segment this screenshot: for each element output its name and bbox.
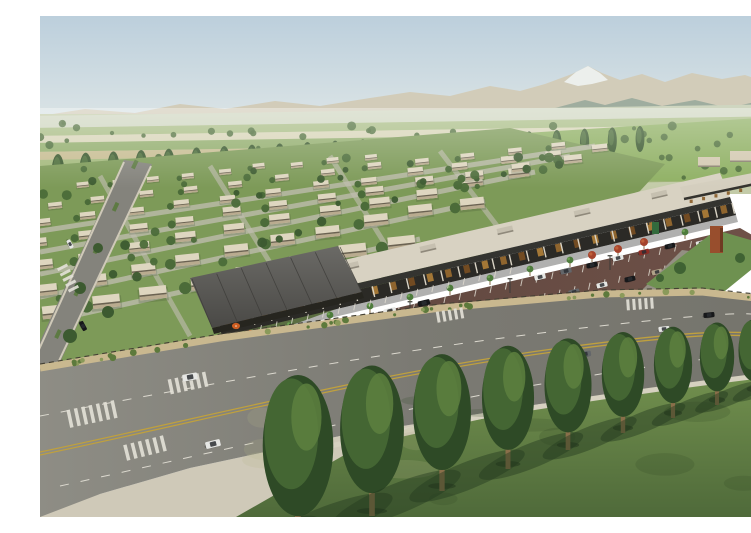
- buffer-shrub: [747, 296, 750, 299]
- red-highlight: [615, 246, 618, 249]
- buffer-shrub: [573, 296, 577, 300]
- residential-tree: [317, 217, 326, 226]
- red-accent-tree: [614, 245, 622, 256]
- palm-crown: [567, 257, 574, 264]
- entrance-tree: [656, 274, 664, 282]
- street-tree: [102, 306, 114, 318]
- house: [318, 204, 342, 218]
- house: [222, 243, 250, 259]
- residential-tree: [218, 257, 227, 266]
- residential-tree: [140, 240, 149, 249]
- entrance-tree: [674, 262, 686, 274]
- house: [314, 225, 342, 241]
- grass-patch: [635, 453, 694, 475]
- red-accent-tree: [640, 238, 648, 249]
- buffer-shrub: [307, 325, 310, 328]
- light-pole: [510, 279, 511, 293]
- palm-highlight: [567, 257, 570, 260]
- palm-tree: [682, 229, 689, 239]
- palm-crown: [682, 229, 689, 236]
- buffer-shrub: [603, 291, 609, 297]
- buffer-shrub: [459, 304, 463, 308]
- buffer-shrub: [342, 317, 348, 323]
- buffer-shrub: [638, 292, 641, 295]
- street-tree: [63, 329, 77, 343]
- red-highlight: [641, 239, 644, 242]
- palm-tree: [527, 266, 534, 276]
- palm-highlight: [682, 229, 685, 232]
- buffer-shrub: [393, 313, 396, 316]
- buffer-shrub: [154, 347, 160, 353]
- buffer-shrub: [689, 290, 694, 295]
- person: [648, 222, 649, 225]
- palm-crown: [327, 312, 334, 319]
- tree-crown-highlight: [564, 344, 584, 389]
- person: [662, 218, 663, 221]
- residential-tree: [257, 238, 267, 248]
- buffer-shrub: [329, 321, 333, 325]
- buffer-shrub: [80, 358, 85, 363]
- palm-crown: [487, 275, 494, 282]
- palm-tree: [567, 257, 574, 267]
- buffer-shrub: [109, 354, 116, 361]
- palm-highlight: [487, 275, 490, 278]
- house: [137, 285, 169, 304]
- buffer-shrub: [620, 293, 625, 298]
- second-strip-window: [739, 189, 742, 192]
- second-strip-window: [727, 191, 730, 194]
- tree-crown-highlight: [714, 327, 729, 360]
- residential-tree: [295, 229, 303, 237]
- residential-tree: [109, 270, 117, 278]
- second-strip-window: [690, 200, 693, 203]
- tree-crown-highlight: [503, 352, 525, 402]
- entrance-tree: [735, 253, 745, 263]
- light-pole: [610, 256, 611, 270]
- residential-tree: [276, 235, 283, 242]
- buffer-shrub: [430, 307, 433, 310]
- buffer-shrub: [72, 362, 76, 366]
- residential-tree: [256, 192, 263, 199]
- palm-crown: [527, 266, 534, 273]
- light-pole-head: [608, 255, 613, 256]
- green-monument-sign: [652, 222, 659, 234]
- house: [139, 190, 155, 199]
- second-strip-window: [714, 194, 717, 197]
- light-pole-head: [508, 278, 513, 279]
- house: [221, 206, 242, 218]
- palm-highlight: [407, 294, 410, 297]
- light-pole-head: [408, 301, 413, 302]
- palm-tree: [487, 275, 494, 285]
- palm-highlight: [327, 312, 330, 315]
- residential-tree: [150, 258, 158, 266]
- street-tree: [93, 243, 103, 253]
- residential-tree: [233, 190, 239, 196]
- buffer-shrub: [183, 343, 188, 348]
- buffer-shrub: [265, 328, 271, 334]
- residential-tree: [151, 227, 160, 236]
- buffer-shrub: [130, 349, 137, 356]
- haze: [40, 108, 751, 188]
- house: [47, 201, 63, 210]
- house: [415, 188, 439, 202]
- scene-canvas: [40, 16, 751, 517]
- residential-tree: [231, 198, 240, 207]
- buffer-shrub: [591, 293, 594, 296]
- red-accent-tree: [588, 251, 596, 262]
- residential-tree: [120, 240, 130, 250]
- horizon-haze: [40, 108, 751, 188]
- house: [317, 193, 338, 205]
- residential-tree: [62, 190, 72, 200]
- buffer-shrub: [100, 358, 103, 361]
- buffer-shrub: [567, 296, 571, 300]
- palm-crown: [407, 294, 414, 301]
- red-highlight: [589, 252, 592, 255]
- buffer-shrub: [421, 308, 425, 312]
- buffer-shrub: [466, 303, 473, 310]
- residential-tree: [127, 254, 135, 262]
- rust-monument-shade: [720, 228, 723, 252]
- residential-tree: [132, 272, 142, 282]
- house: [222, 222, 246, 236]
- buffer-shrub: [335, 320, 341, 326]
- umbrella-top: [235, 325, 237, 327]
- residential-tree: [335, 201, 340, 206]
- house: [128, 223, 149, 235]
- buffer-shrub: [662, 288, 669, 295]
- residential-tree: [391, 196, 398, 203]
- second-strip-window: [702, 197, 705, 200]
- palm-highlight: [527, 266, 530, 269]
- buffer-shrub: [321, 322, 327, 328]
- tree-crown-highlight: [619, 337, 637, 377]
- tree-crown-highlight: [291, 383, 321, 450]
- tree-crown-highlight: [436, 361, 461, 416]
- tree-crown-highlight: [669, 331, 685, 367]
- aerial-render-image: [40, 16, 751, 517]
- tree-crown-highlight: [366, 373, 393, 434]
- residential-tree: [191, 237, 197, 243]
- car-windshield: [707, 313, 712, 317]
- house: [406, 203, 434, 219]
